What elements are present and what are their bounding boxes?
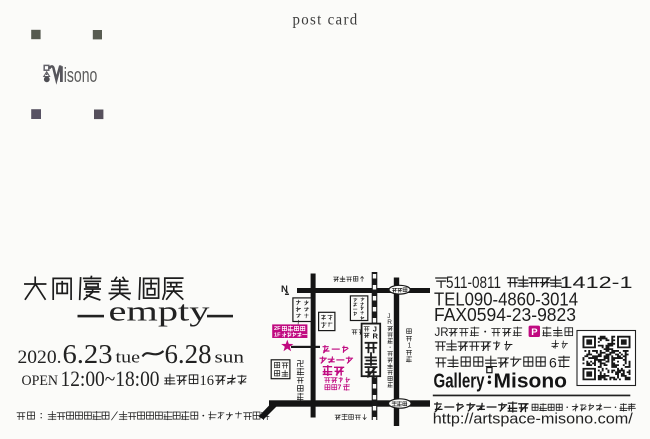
- svg-text:R: R: [373, 332, 379, 341]
- svg-text:P: P: [531, 327, 538, 338]
- svg-text:sun: sun: [215, 348, 245, 367]
- svg-text:OPEN: OPEN: [22, 373, 59, 389]
- svg-text:12:00~18:00: 12:00~18:00: [61, 366, 160, 391]
- svg-text:empty: empty: [109, 297, 210, 328]
- svg-text:16: 16: [200, 373, 215, 389]
- svg-text:isono: isono: [64, 65, 98, 87]
- svg-text:R: R: [387, 319, 392, 326]
- svg-text:Misono: Misono: [494, 371, 568, 393]
- svg-text:tue: tue: [116, 348, 141, 367]
- svg-text:2020.: 2020.: [18, 347, 62, 368]
- svg-text:JR: JR: [435, 327, 449, 339]
- svg-text:http://artspace-misono.com/: http://artspace-misono.com/: [433, 411, 634, 428]
- svg-text:7: 7: [338, 385, 342, 392]
- svg-text:Gallery: Gallery: [434, 371, 486, 393]
- svg-text:post card: post card: [293, 11, 359, 28]
- svg-text:1F: 1F: [274, 333, 281, 339]
- svg-text:6.23: 6.23: [63, 338, 113, 369]
- svg-text:N: N: [281, 284, 288, 295]
- svg-text:6: 6: [549, 355, 557, 371]
- svg-text:2F: 2F: [274, 326, 281, 332]
- svg-text:6.28: 6.28: [165, 338, 212, 369]
- svg-text:FAX0594-23-9823: FAX0594-23-9823: [434, 304, 576, 325]
- svg-text:1: 1: [408, 343, 412, 350]
